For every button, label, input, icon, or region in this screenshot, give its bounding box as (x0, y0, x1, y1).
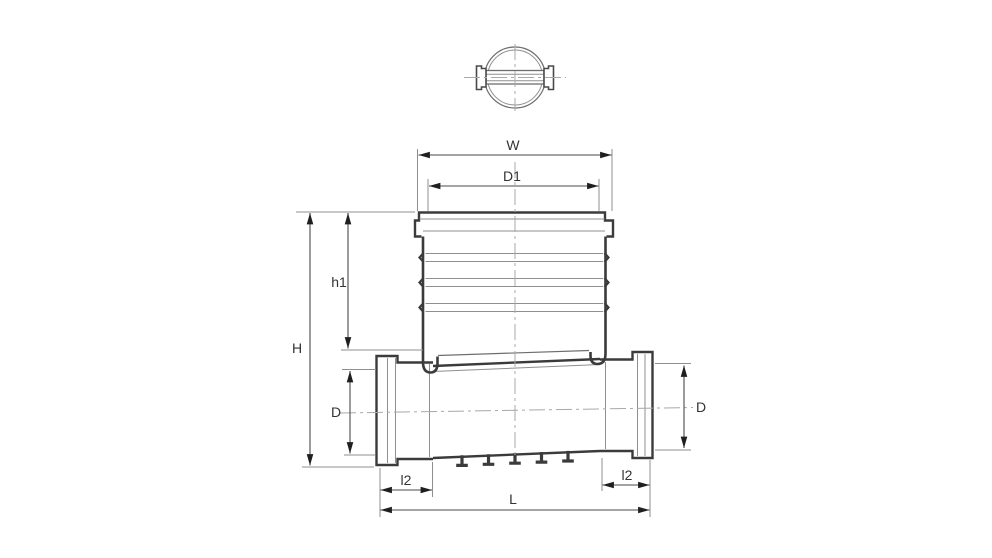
label-D-right: D (696, 399, 706, 415)
technical-drawing-canvas: W D1 h1 H D D l2 l2 L (0, 0, 992, 558)
label-D-left: D (331, 404, 341, 420)
riser-fill (424, 214, 604, 349)
left-socket-fill (377, 356, 434, 465)
right-socket (600, 352, 653, 458)
label-H: H (292, 340, 302, 356)
ext-D-right (655, 364, 691, 451)
pipe-body-fill (433, 359, 600, 458)
label-L: L (509, 491, 517, 507)
label-h1: h1 (331, 274, 347, 290)
left-socket (377, 356, 434, 465)
riser-shaft (415, 213, 613, 373)
top-view (464, 44, 566, 111)
ext-bottom (380, 458, 650, 517)
drawing-svg: W D1 h1 H D D l2 l2 L (0, 0, 992, 558)
label-l2-left: l2 (401, 472, 412, 488)
label-W: W (506, 137, 520, 153)
label-D1: D1 (503, 168, 521, 184)
label-l2-right: l2 (622, 467, 633, 483)
pipe-saddle-line (438, 351, 589, 356)
main-pipe (433, 351, 600, 468)
